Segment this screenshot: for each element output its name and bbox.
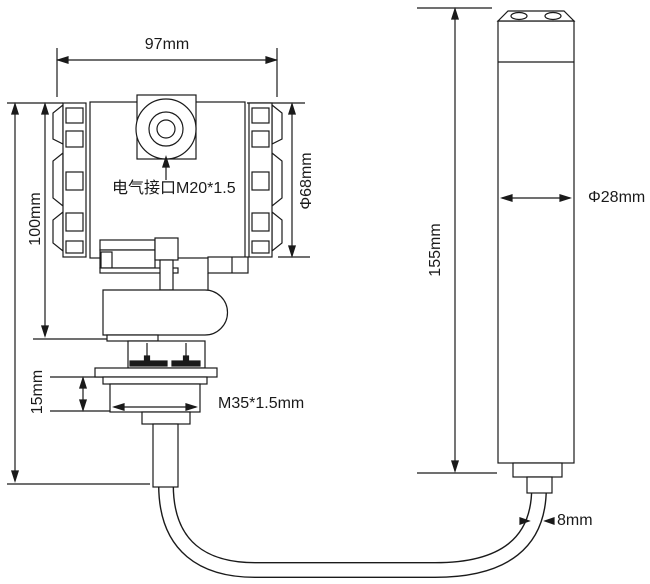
probe <box>498 11 574 493</box>
dim-label-cable-diameter: 8mm <box>557 513 593 529</box>
arrowhead <box>42 326 48 336</box>
drawing-linework <box>0 0 650 584</box>
arrowhead <box>42 104 48 114</box>
probe-collar <box>513 463 562 477</box>
arrowhead <box>266 57 276 63</box>
cooling-fins-left <box>53 103 86 257</box>
dim-label-head-width: 97mm <box>117 37 217 53</box>
flange-band <box>103 377 207 384</box>
port-inner-ring <box>157 120 175 138</box>
thread-spec-label: M35*1.5mm <box>218 396 304 412</box>
arrowhead <box>12 104 18 114</box>
connection-stem <box>153 424 178 487</box>
arrowhead <box>452 461 458 471</box>
probe-cable-neck <box>527 477 552 493</box>
cooling-fins-right <box>249 103 282 257</box>
dim-label-head-diameter: Φ68mm <box>299 131 315 231</box>
arrowhead <box>545 518 554 524</box>
dim-line-97mm <box>57 48 277 97</box>
electrical-port-label: 电气接口M20*1.5 <box>112 181 236 197</box>
process-connection <box>95 341 217 424</box>
lower-collar <box>142 412 190 424</box>
arrowhead <box>80 378 86 388</box>
probe-cap-top <box>498 11 574 21</box>
probe-body <box>498 21 574 463</box>
arrowhead <box>452 9 458 19</box>
dim-label-thread-height: 15mm <box>30 342 46 442</box>
dim-label-head-height: 100mm <box>28 169 44 269</box>
arrowhead <box>80 400 86 410</box>
arrowhead <box>58 57 68 63</box>
electrical-port <box>136 95 196 159</box>
seal-ring <box>172 361 200 366</box>
arrowhead <box>12 471 18 481</box>
flange-plate <box>95 368 217 377</box>
dim-label-probe-length: 155mm <box>428 200 444 300</box>
arrowhead <box>289 104 295 114</box>
probe-cap-hole <box>511 13 527 20</box>
signal-cable <box>166 485 539 570</box>
transmitter-head <box>53 95 282 258</box>
arrowhead <box>289 246 295 256</box>
probe-cap-hole <box>545 13 561 20</box>
process-capsule <box>103 290 228 341</box>
dim-label-probe-diameter: Φ28mm <box>588 190 645 206</box>
dimension-drawing: 97mm 电气接口M20*1.5 Φ68mm 100mm 15mm M35*1.… <box>0 0 650 584</box>
seal-ring <box>130 361 167 366</box>
